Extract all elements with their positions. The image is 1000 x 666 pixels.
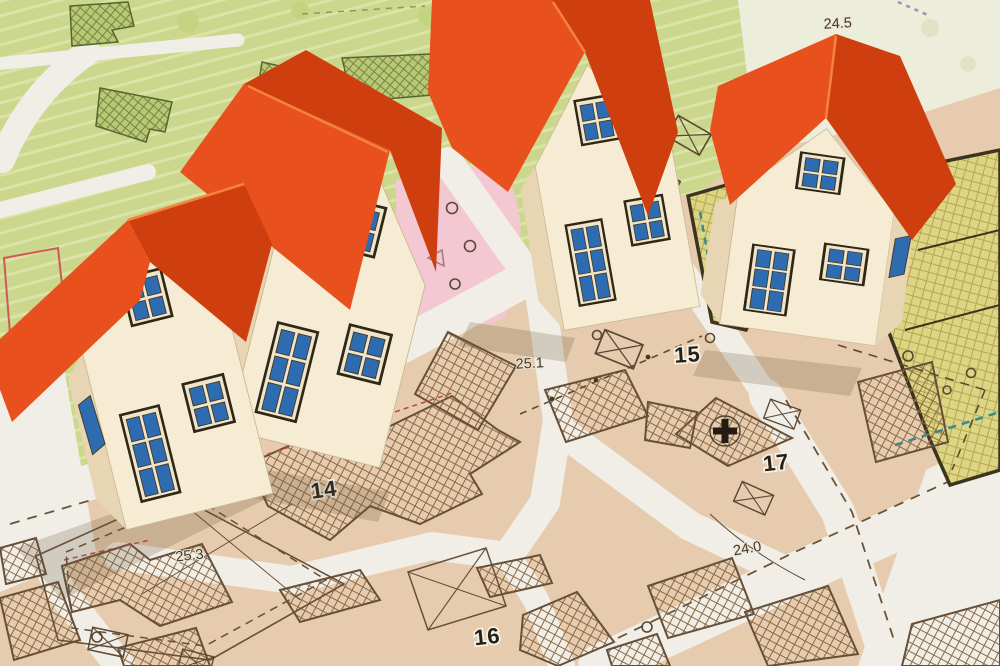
- block-label-15: 15: [673, 341, 701, 368]
- block-label-17: 17: [762, 449, 791, 477]
- elevation-label: 25.3: [175, 547, 205, 566]
- photo-houses-on-cadastral-map: 15 17 14 16 24.5 25.1 25.3 24.0: [0, 0, 1000, 666]
- scene: 15 17 14 16 24.5 25.1 25.3 24.0: [0, 0, 1000, 666]
- block-label-16: 16: [473, 623, 502, 651]
- church-cross-icon: [710, 416, 740, 446]
- elevation-label: 24.5: [823, 15, 852, 32]
